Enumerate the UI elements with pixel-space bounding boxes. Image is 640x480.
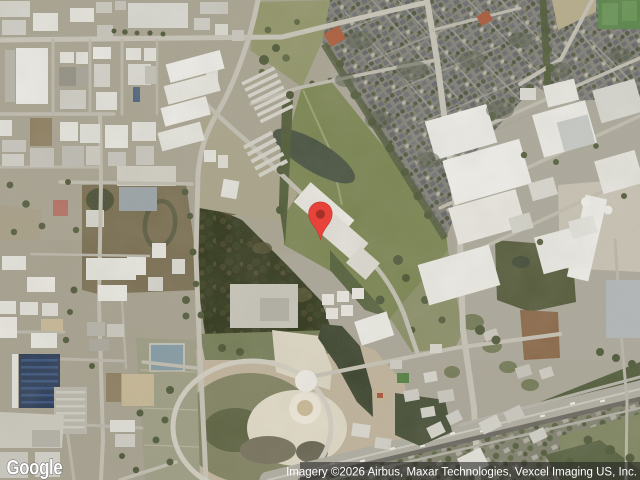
svg-text:Google: Google	[7, 457, 63, 480]
svg-text:Imagery ©2026 Airbus, Maxar Te: Imagery ©2026 Airbus, Maxar Technologies…	[286, 467, 637, 479]
